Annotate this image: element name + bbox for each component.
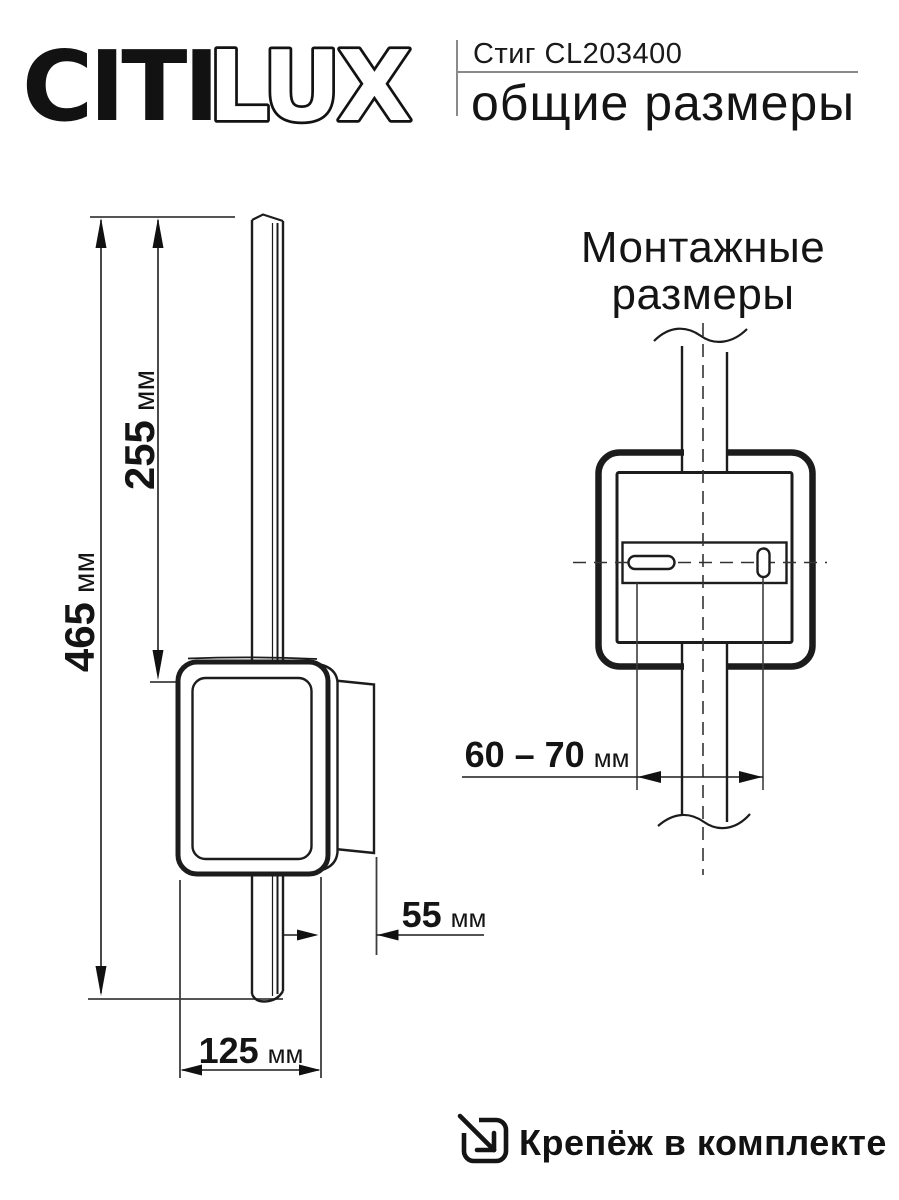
dimension-width-label: 125мм [199,1030,304,1072]
screw-slot-right [758,549,770,578]
screw-slot-left [629,556,675,569]
dimension-value: 55 [402,894,442,936]
dimension-total-height-label: 465мм [56,552,104,672]
mounting-drawing [462,323,827,875]
dimension-unit: мм [68,552,102,593]
dimension-value: 465 [56,602,104,672]
mounting-title-line1: Монтажные [581,224,825,271]
fixing-kit-icon [448,1104,506,1161]
dimension-unit: мм [451,903,487,934]
dimension-value: 60 – 70 [465,734,585,776]
dimension-hole-spacing-label: 60 – 70мм [465,734,630,776]
dimension-upper-height-label: 255мм [116,370,164,490]
dimension-value: 125 [199,1030,259,1072]
lamp-rod [252,215,283,1002]
dimension-unit: мм [594,743,630,774]
mounting-title-line2: размеры [581,271,825,318]
mounting-title: Монтажные размеры [581,224,825,318]
fixing-kit-label: Крепёж в комплекте [519,1122,887,1164]
dimension-depth-label: 55мм [402,894,487,936]
break-wave-top [654,329,747,342]
dimension-unit: мм [268,1039,304,1070]
spec-sheet-page: CITI LUX Стиг CL203400 общие размеры [0,0,899,1200]
overall-drawing [88,215,484,1079]
lamp-front-plate [178,662,328,874]
dimension-value: 255 [116,420,164,490]
extension-lines [88,217,377,1078]
technical-drawings [0,0,899,1200]
dimension-unit: мм [128,370,162,411]
